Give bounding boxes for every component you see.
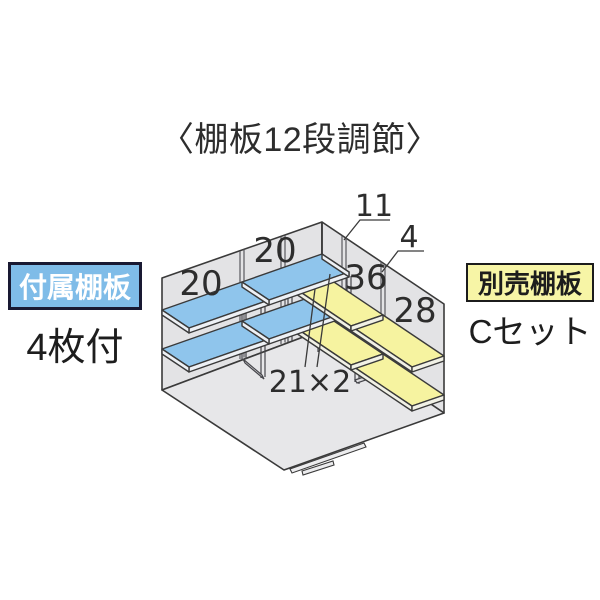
dim-supports: 21×2: [269, 365, 351, 400]
dim-divider-pillar: 4: [399, 220, 418, 255]
shed-isometric-diagram: 20 20 36 28 11 4 21×2: [0, 0, 600, 600]
dim-corner-pillar: 11: [355, 189, 393, 224]
dim-right-bay-2: 28: [393, 291, 436, 331]
dim-left-bay-1: 20: [179, 264, 222, 304]
dim-right-bay-1: 36: [344, 258, 387, 298]
dim-left-bay-2: 20: [253, 231, 296, 271]
